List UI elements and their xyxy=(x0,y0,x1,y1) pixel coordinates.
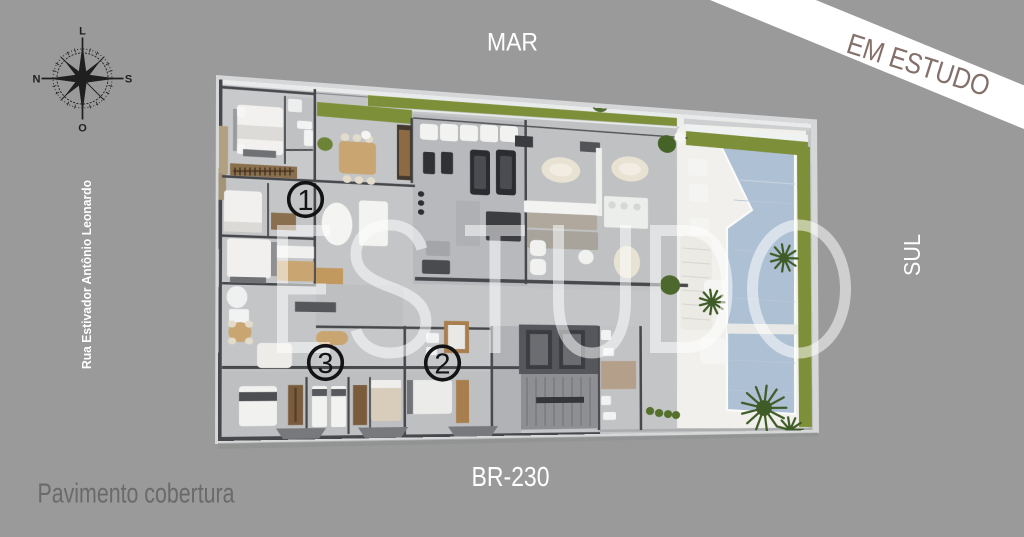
svg-text:Pavimento cobertura: Pavimento cobertura xyxy=(38,478,235,509)
svg-text:S: S xyxy=(125,74,132,86)
svg-text:MAR: MAR xyxy=(487,29,538,57)
svg-text:3: 3 xyxy=(317,348,333,380)
svg-text:O: O xyxy=(78,123,87,135)
svg-text:Rua Estivador Antônio Leonardo: Rua Estivador Antônio Leonardo xyxy=(79,180,94,369)
svg-text:N: N xyxy=(33,74,41,86)
svg-text:1: 1 xyxy=(297,185,313,217)
svg-text:2: 2 xyxy=(434,349,450,381)
svg-text:BR-230: BR-230 xyxy=(472,461,550,492)
svg-text:L: L xyxy=(79,26,86,38)
svg-text:EM ESTUDO: EM ESTUDO xyxy=(843,28,994,103)
svg-text:SUL: SUL xyxy=(899,234,925,276)
